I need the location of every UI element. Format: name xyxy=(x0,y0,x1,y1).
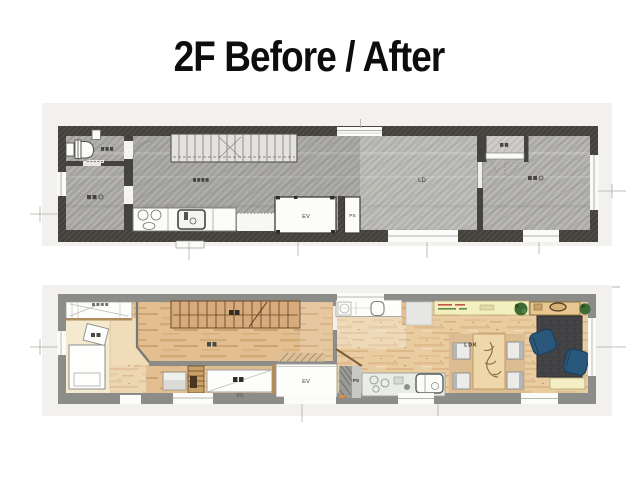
svg-text:EV: EV xyxy=(302,379,310,385)
svg-text:(R): (R) xyxy=(237,393,244,399)
svg-text:PS: PS xyxy=(349,213,355,219)
svg-text:LD: LD xyxy=(418,178,426,184)
svg-text:EV: EV xyxy=(302,214,310,220)
svg-text:LDK: LDK xyxy=(464,343,478,349)
svg-text:PS: PS xyxy=(353,378,359,383)
